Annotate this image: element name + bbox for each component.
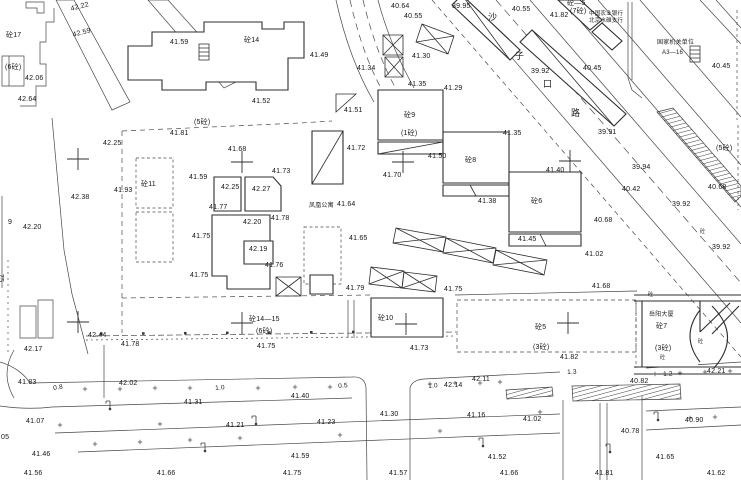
spot-elevation-label: 42.17 [24, 346, 43, 353]
spot-elevation-label: 39.92 [712, 244, 731, 251]
dimension-label: 1.2 [663, 371, 673, 378]
building-label: (5砼) [716, 145, 732, 152]
spot-elevation-label: 41.50 [428, 153, 447, 160]
spot-elevation-label: 42.20 [23, 224, 42, 231]
spot-elevation-label: 41.02 [523, 416, 542, 423]
spot-elevation-label: 40.55 [512, 6, 531, 13]
spot-elevation-label: 41.31 [184, 399, 203, 406]
dimension-label: 1.0 [428, 383, 438, 390]
road-name-char: 沙 [488, 13, 497, 22]
road-name-char: 路 [571, 109, 580, 118]
spot-elevation-label: 41.68 [592, 283, 611, 290]
spot-elevation-label: 41.56 [24, 470, 43, 477]
spot-elevation-label: 41.68 [228, 146, 247, 153]
spot-elevation-label: 41.35 [408, 81, 427, 88]
spot-elevation-label: 40.45 [712, 63, 731, 70]
spot-elevation-label: 41.82 [550, 12, 569, 19]
building-label: (7砼) [570, 8, 586, 15]
dimension-label: 0.8 [53, 385, 63, 393]
spot-elevation-label: 42.11 [472, 376, 490, 383]
spot-elevation-label: 40.68 [708, 184, 727, 191]
building-label: (3砼) [533, 344, 549, 351]
spot-elevation-label: 41.81 [170, 130, 189, 137]
spot-elevation-label: 41.52 [488, 454, 507, 461]
spot-elevation-label: 41.46 [32, 451, 51, 458]
spot-elevation-label: 41.70 [383, 172, 402, 179]
building-label: (1砼) [401, 130, 417, 137]
spot-elevation-label: 40.78 [621, 428, 640, 435]
building-label: 砼5 [535, 324, 546, 331]
spot-elevation-label: 41.66 [157, 470, 176, 477]
spot-elevation-label: 42.06 [25, 75, 44, 82]
spot-elevation-label: 41.52 [252, 98, 271, 105]
annotation-label: 凤凰公寓 [309, 203, 334, 209]
building-label: 砼14—15 [249, 316, 280, 323]
spot-elevation-label: 41.59 [291, 453, 310, 460]
spot-elevation-label: 41.49 [310, 52, 329, 59]
annotation-label: 中国农业银行 [589, 12, 623, 18]
spot-elevation-label: 39.94 [632, 164, 651, 171]
spot-elevation-label: 41.57 [389, 470, 408, 477]
building-label: (3砼) [655, 345, 671, 352]
spot-elevation-label: 39.92 [531, 68, 550, 75]
spot-elevation-label: 41.65 [656, 454, 675, 461]
building-label: (6砼) [256, 328, 272, 335]
spot-elevation-label: 41.02 [585, 251, 604, 258]
spot-elevation-label: 41.45 [518, 236, 537, 243]
dimension-label: 1.0 [215, 385, 225, 392]
spot-elevation-label: 41.75 [190, 272, 209, 279]
spot-elevation-label: 42.38 [71, 194, 90, 201]
spot-elevation-label: 41.76 [265, 262, 284, 269]
spot-elevation-label: 05 [1, 434, 9, 441]
spot-elevation-label: 41.51 [344, 107, 363, 114]
building-label: 砼—5 [567, 0, 586, 7]
spot-elevation-label: 42.44 [88, 332, 107, 339]
annotation-label: A3—16 [662, 50, 683, 56]
building-label: 砼7 [656, 323, 667, 330]
building-label: 砼6 [531, 198, 542, 205]
building-label: 9 [8, 219, 12, 226]
spot-elevation-label: 41.72 [347, 145, 366, 152]
spot-elevation-label: 40.64 [391, 3, 410, 10]
spot-elevation-label: 41.83 [18, 379, 37, 386]
spot-elevation-label: 40.82 [630, 378, 649, 385]
spot-elevation-label: 41.75 [192, 233, 211, 240]
building-label: 砼8 [465, 157, 476, 164]
spot-elevation-label: 41.93 [114, 187, 133, 194]
spot-elevation-label: 40.45 [583, 65, 602, 72]
spot-elevation-label: 42.19 [249, 246, 268, 253]
spot-elevation-label: 41.30 [412, 53, 431, 60]
annotation-label: 北京水碓支行 [589, 19, 623, 25]
spot-elevation-label: 41.40 [546, 167, 565, 174]
spot-elevation-label: 41.75 [444, 286, 463, 293]
dimension-label: 1.3 [567, 369, 577, 376]
spot-elevation-label: 42.25 [103, 140, 122, 147]
spot-elevation-label: 41.78 [271, 215, 290, 222]
spot-elevation-label: 42.59 [72, 27, 92, 39]
spot-elevation-label: 40.68 [594, 217, 613, 224]
annotation-label: 国家机关单位 [657, 40, 694, 46]
building-label: 砼14 [244, 37, 259, 44]
spot-elevation-label: 41.81 [595, 470, 614, 477]
spot-elevation-label: 39.92 [672, 201, 691, 208]
spot-elevation-label: 41.38 [478, 198, 497, 205]
dimension-label: 0.5 [338, 383, 348, 390]
spot-elevation-label: 42.64 [18, 96, 37, 103]
road-name-char: 口 [543, 80, 552, 89]
spot-elevation-label: 41.16 [467, 412, 486, 419]
spot-elevation-label: 41.73 [410, 345, 429, 352]
spot-elevation-label: 41.34 [357, 65, 376, 72]
spot-elevation-label: 42.20 [243, 219, 262, 226]
survey-map: 42.2242.5941.5942.0642.6441.4941.5241.51… [0, 0, 741, 480]
spot-elevation-label: 41.82 [560, 354, 579, 361]
building-label: 砼 [698, 340, 703, 345]
building-label: 砼11 [141, 181, 156, 188]
spot-elevation-label: 41.21 [226, 422, 245, 429]
building-label: 75 [0, 274, 4, 282]
building-label: 砼 [700, 230, 705, 235]
spot-elevation-label: 41.73 [272, 168, 291, 175]
spot-elevation-label: 42.22 [70, 1, 90, 13]
spot-elevation-label: 41.07 [26, 418, 45, 425]
spot-elevation-label: 41.79 [346, 285, 365, 292]
spot-elevation-label: 41.59 [189, 174, 208, 181]
spot-elevation-label: 41.23 [317, 419, 336, 426]
spot-elevation-label: 41.64 [337, 201, 356, 208]
spot-elevation-label: 42.21 [707, 368, 726, 375]
spot-elevation-label: 41.29 [444, 85, 463, 92]
spot-elevation-label: 42.25 [221, 184, 240, 191]
spot-elevation-label: 39.95 [452, 3, 471, 10]
spot-elevation-label: 41.35 [503, 130, 522, 137]
spot-elevation-label: 41.78 [121, 341, 140, 348]
spot-elevation-label: 41.75 [283, 470, 302, 477]
spot-elevation-label: 42.14 [444, 382, 463, 389]
road-name-char: 子 [515, 52, 524, 61]
spot-elevation-label: 42.02 [119, 380, 138, 387]
annotation-label: 岳阳大厦 [649, 312, 674, 318]
spot-elevation-label: 41.65 [349, 235, 368, 242]
spot-elevation-label: 40.42 [622, 186, 641, 193]
map-label-layer: 42.2242.5941.5942.0642.6441.4941.5241.51… [0, 0, 741, 480]
building-label: (5砼) [194, 119, 210, 126]
building-label: 砼9 [404, 112, 415, 119]
building-label: (6砼) [5, 64, 21, 71]
spot-elevation-label: 41.75 [257, 343, 276, 350]
building-label: 砼 [648, 293, 653, 298]
spot-elevation-label: 39.91 [598, 129, 617, 136]
spot-elevation-label: 40.55 [404, 13, 423, 20]
spot-elevation-label: 41.30 [380, 411, 399, 418]
spot-elevation-label: 41.66 [500, 470, 519, 477]
spot-elevation-label: 40.90 [685, 417, 704, 424]
building-label: 砼10 [378, 315, 393, 322]
building-label: 砼17 [6, 32, 21, 39]
spot-elevation-label: 41.77 [209, 204, 228, 211]
spot-elevation-label: 41.40 [291, 393, 310, 400]
spot-elevation-label: 42.27 [252, 186, 271, 193]
spot-elevation-label: 41.62 [707, 470, 726, 477]
building-label: 砼 [660, 356, 665, 361]
spot-elevation-label: 41.59 [170, 39, 189, 46]
